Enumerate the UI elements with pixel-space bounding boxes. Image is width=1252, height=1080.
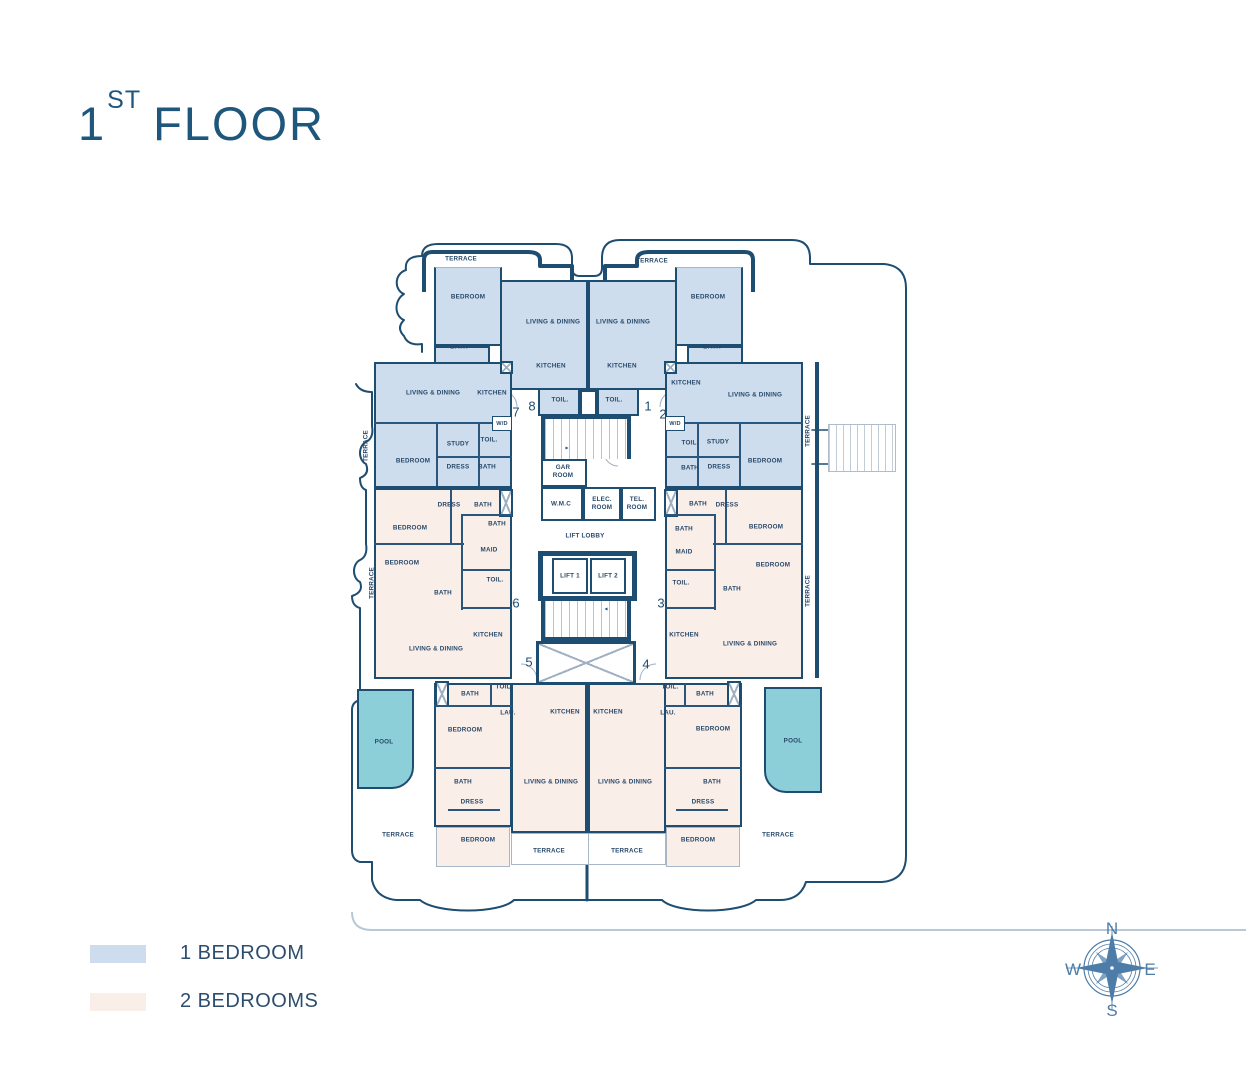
room-label-kitchen: KITCHEN <box>669 632 698 639</box>
interior-wall <box>664 705 742 707</box>
room-label-laundry: LAU. <box>500 710 516 717</box>
room-label-terrace: TERRACE <box>611 848 643 855</box>
wall-segment <box>586 280 590 390</box>
interior-wall <box>461 607 512 609</box>
unit-number-8: 8 <box>528 399 535 414</box>
room-label-dress: DRESS <box>716 502 739 509</box>
room-label-terrace: TERRACE <box>363 430 370 462</box>
shaft-cross <box>727 681 741 707</box>
room-label-bedroom: BEDROOM <box>393 525 427 532</box>
unit-number-6: 6 <box>512 596 519 611</box>
room-label-kitchen: KITCHEN <box>473 632 502 639</box>
wall-segment <box>374 486 512 490</box>
room-label-bath: BATH <box>488 521 506 528</box>
top-shaft-box <box>580 390 597 416</box>
room-label-kitchen: KITCHEN <box>536 363 565 370</box>
room-label-bedroom: BEDROOM <box>756 562 790 569</box>
room-label-living-dining: LIVING & DINING <box>524 779 578 786</box>
room-label-bath: BATH <box>461 691 479 698</box>
interior-wall <box>461 514 463 610</box>
room-label-kitchen: KITCHEN <box>477 390 506 397</box>
interior-wall <box>448 809 500 811</box>
room-label-toilet: TOIL. <box>487 577 504 584</box>
interior-wall <box>490 683 492 707</box>
interior-wall <box>461 569 512 571</box>
unit-number-1: 1 <box>644 399 651 414</box>
interior-wall <box>714 514 716 610</box>
room-label-bath: BATH <box>723 586 741 593</box>
unit4-living-block <box>588 683 666 833</box>
unit-number-4: 4 <box>642 657 649 672</box>
compass-west-label: W <box>1065 960 1081 980</box>
room-label-lift-1: LIFT 1 <box>560 573 580 580</box>
room-label-bath: BATH <box>696 691 714 698</box>
unit5-living-block <box>511 683 589 833</box>
compass-south-label: S <box>1106 1001 1117 1021</box>
interior-wall <box>665 569 716 571</box>
room-label-dress: DRESS <box>438 502 461 509</box>
unit-number-7: 7 <box>512 405 519 420</box>
room-label-bath: BATH <box>474 502 492 509</box>
room-label-terrace: TERRACE <box>369 567 376 599</box>
room-label-elec-room: ELEC. ROOM <box>587 496 617 512</box>
interior-wall <box>676 809 728 811</box>
shaft-cross <box>499 489 513 517</box>
interior-wall <box>434 767 512 769</box>
room-label-bedroom: BEDROOM <box>749 524 783 531</box>
room-label-bath: BATH <box>703 344 721 351</box>
service-void <box>536 641 636 685</box>
room-label-maid: MAID <box>676 549 693 556</box>
shaft-cross <box>664 489 678 517</box>
stairs-upper <box>541 415 631 459</box>
exterior-stairs <box>828 424 896 472</box>
unit1-bedroom-block <box>675 267 743 346</box>
room-label-pool: POOL <box>784 738 803 745</box>
wall-segment <box>665 486 803 490</box>
room-label-bath: BATH <box>703 779 721 786</box>
interior-wall <box>434 705 512 707</box>
room-label-living-dining: LIVING & DINING <box>409 646 463 653</box>
stairs-lower <box>541 601 631 641</box>
room-label-bedroom: BEDROOM <box>385 560 419 567</box>
unit4-bedroom-ext <box>666 827 740 867</box>
room-label-study: STUDY <box>447 441 469 448</box>
room-label-living-dining: LIVING & DINING <box>596 319 650 326</box>
room-label-bedroom: BEDROOM <box>451 294 485 301</box>
room-label-bath: BATH <box>454 779 472 786</box>
room-label-terrace: TERRACE <box>533 848 565 855</box>
interior-wall <box>436 456 512 458</box>
room-label-terrace: TERRACE <box>636 258 668 265</box>
room-label-terrace: TERRACE <box>382 832 414 839</box>
room-label-dress: DRESS <box>692 799 715 806</box>
interior-wall <box>665 422 803 424</box>
room-label-terrace: TERRACE <box>805 415 812 447</box>
interior-wall <box>461 514 512 516</box>
room-label-kitchen: KITCHEN <box>550 709 579 716</box>
room-label-bath: BATH <box>681 465 699 472</box>
room-label-bedroom: BEDROOM <box>448 727 482 734</box>
room-label-gar-room: GAR ROOM <box>548 464 578 480</box>
room-label-dress: DRESS <box>708 464 731 471</box>
room-label-toilet: TOIL. <box>606 397 623 404</box>
room-label-bedroom: BEDROOM <box>396 458 430 465</box>
room-label-lift-2: LIFT 2 <box>598 573 618 580</box>
room-label-pool: POOL <box>375 739 394 746</box>
interior-wall <box>450 487 452 545</box>
room-label-bedroom: BEDROOM <box>691 294 725 301</box>
room-label-bath: BATH <box>450 344 468 351</box>
unit-number-3: 3 <box>657 596 664 611</box>
interior-wall <box>665 607 716 609</box>
interior-wall <box>684 683 686 707</box>
room-label-bedroom: BEDROOM <box>696 726 730 733</box>
unit8-bedroom-block <box>434 267 502 346</box>
interior-wall <box>665 456 741 458</box>
room-label-washer-dryer: W/D <box>496 421 507 427</box>
room-label-living-dining: LIVING & DINING <box>723 641 777 648</box>
unit-number-2: 2 <box>659 407 666 422</box>
room-label-bedroom: BEDROOM <box>681 837 715 844</box>
unit5-bedroom-ext <box>436 827 510 867</box>
room-label-wmc: W.M.C <box>551 501 571 508</box>
room-label-living-dining: LIVING & DINING <box>728 392 782 399</box>
interior-wall <box>725 487 727 545</box>
room-label-living-dining: LIVING & DINING <box>598 779 652 786</box>
stair-arrow-down: ◂ <box>604 606 607 613</box>
shaft-cross <box>500 361 513 374</box>
stair-arrow-up: ▸ <box>565 445 568 452</box>
shaft-cross <box>435 681 449 707</box>
room-label-lift-lobby: LIFT LOBBY <box>565 533 604 540</box>
interior-wall <box>664 767 742 769</box>
room-label-bath: BATH <box>689 501 707 508</box>
room-label-dress: DRESS <box>447 464 470 471</box>
unit-number-5: 5 <box>525 655 532 670</box>
room-label-bath: BATH <box>434 590 452 597</box>
room-label-toilet: TOIL. <box>496 684 513 691</box>
room-label-laundry: LAU. <box>660 710 676 717</box>
room-label-bedroom: BEDROOM <box>748 458 782 465</box>
room-label-toilet: TOIL. <box>673 580 690 587</box>
room-label-bedroom: BEDROOM <box>461 837 495 844</box>
room-label-terrace: TERRACE <box>762 832 794 839</box>
room-label-maid: MAID <box>481 547 498 554</box>
wall-segment <box>815 362 819 678</box>
floor-plan-page: 1STFLOOR <box>0 0 1252 1080</box>
room-label-bath: BATH <box>478 464 496 471</box>
unit8-living-block <box>500 280 588 390</box>
room-label-terrace: TERRACE <box>805 575 812 607</box>
room-label-kitchen: KITCHEN <box>593 709 622 716</box>
room-label-tel-room: TEL. ROOM <box>622 496 652 512</box>
room-label-washer-dryer: W/D <box>669 421 680 427</box>
compass-north-label: N <box>1106 919 1118 939</box>
room-label-toilet: TOIL. <box>682 440 699 447</box>
shaft-cross <box>664 361 677 374</box>
room-label-living-dining: LIVING & DINING <box>526 319 580 326</box>
room-label-bath: BATH <box>675 526 693 533</box>
room-label-dress: DRESS <box>461 799 484 806</box>
room-label-toilet: TOIL. <box>662 684 679 691</box>
room-label-toilet: TOIL. <box>481 437 498 444</box>
room-label-kitchen: KITCHEN <box>607 363 636 370</box>
room-label-toilet: TOIL. <box>552 397 569 404</box>
wall-segment <box>585 683 590 833</box>
room-label-terrace: TERRACE <box>445 256 477 263</box>
room-label-living-dining: LIVING & DINING <box>406 390 460 397</box>
room-label-kitchen: KITCHEN <box>671 380 700 387</box>
interior-wall <box>665 514 716 516</box>
compass-east-label: E <box>1144 960 1155 980</box>
room-label-study: STUDY <box>707 439 729 446</box>
